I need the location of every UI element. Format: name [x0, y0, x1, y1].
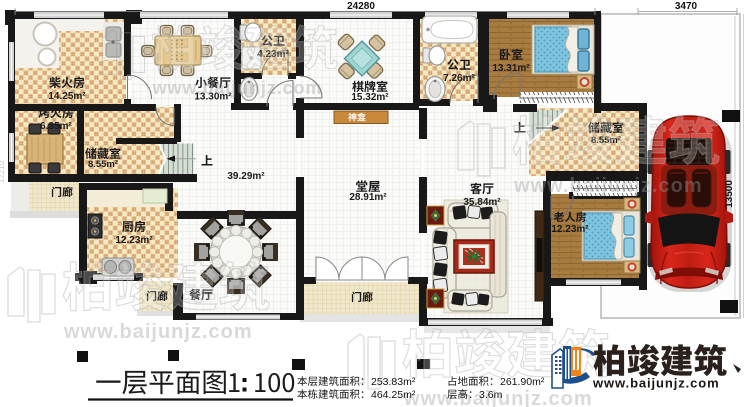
- svg-text:12210: 12210: [0, 160, 6, 183]
- svg-text:www.baijunjz.com: www.baijunjz.com: [592, 376, 720, 391]
- svg-text:39.29m²: 39.29m²: [227, 171, 265, 182]
- svg-text:35.84m²: 35.84m²: [463, 197, 501, 208]
- svg-text:12.23m²: 12.23m²: [551, 224, 589, 235]
- svg-text:6.35m²: 6.35m²: [40, 121, 72, 132]
- svg-text:12.23m²: 12.23m²: [115, 235, 153, 246]
- svg-text:24280: 24280: [347, 1, 375, 12]
- svg-text:8.55m²: 8.55m²: [88, 159, 118, 170]
- svg-text:261.90m²: 261.90m²: [500, 376, 545, 388]
- svg-text:3470: 3470: [675, 1, 698, 12]
- svg-text:15.32m²: 15.32m²: [351, 92, 389, 103]
- svg-text:3.6m: 3.6m: [479, 389, 503, 401]
- svg-text:253.83m²: 253.83m²: [371, 376, 416, 388]
- svg-text:14.25m²: 14.25m²: [48, 91, 86, 102]
- svg-text:464.25m²: 464.25m²: [371, 389, 416, 401]
- svg-text:13500: 13500: [724, 180, 735, 208]
- svg-text:7.26m²: 7.26m²: [443, 73, 475, 84]
- svg-text:28.91m²: 28.91m²: [349, 192, 387, 203]
- svg-text:13.31m²: 13.31m²: [492, 63, 530, 74]
